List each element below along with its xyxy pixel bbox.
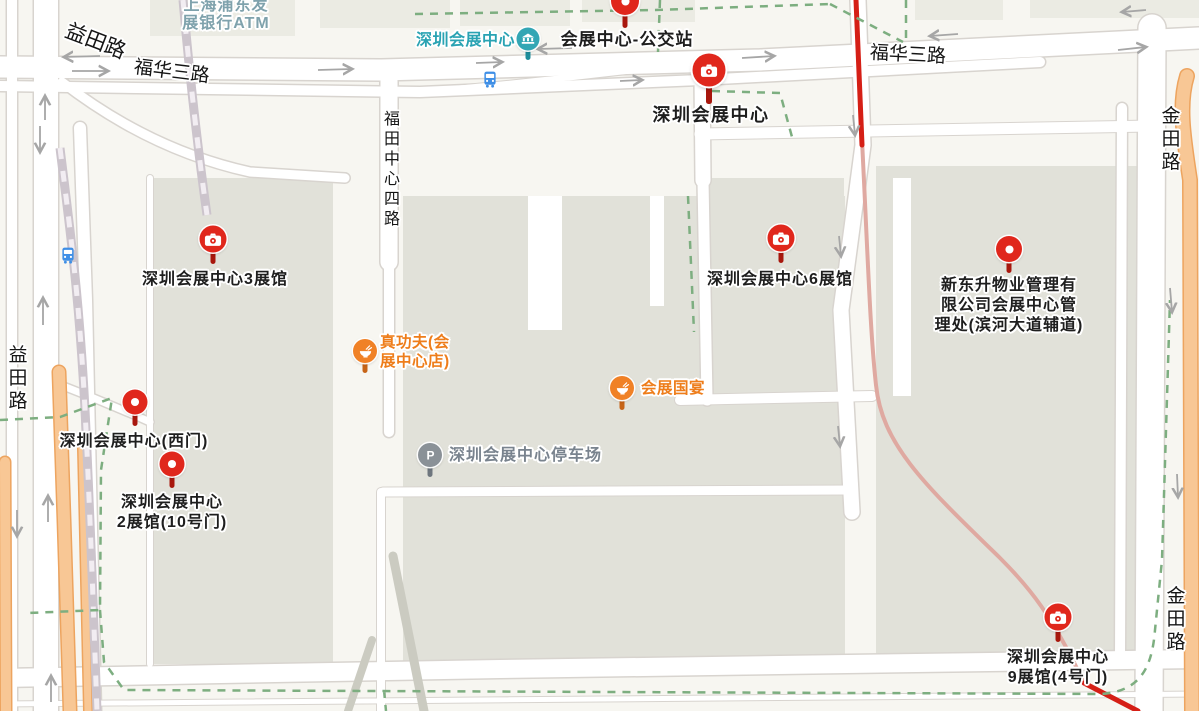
dot-pin[interactable] <box>123 390 148 415</box>
food-bowl-icon <box>615 381 630 396</box>
dot-icon <box>131 398 140 407</box>
poi-label-line: 深圳会展中心停车场 <box>449 446 602 466</box>
camera-icon <box>701 63 718 77</box>
poi-label-convention-banquet-restaurant[interactable]: 会展国宴 <box>641 379 705 398</box>
dot-pin[interactable] <box>611 0 639 15</box>
dot-pin[interactable] <box>996 236 1022 262</box>
poi-label-line: 深圳会展中心 <box>1007 648 1109 668</box>
poi-label-hall-9[interactable]: 深圳会展中心9展馆(4号门) <box>1007 648 1109 688</box>
bus-stop-icon <box>61 247 76 269</box>
poi-label-line: 2展馆(10号门) <box>117 513 227 533</box>
poi-label-line: 理处(滨河大道辅道) <box>935 316 1084 336</box>
dot-pin[interactable] <box>160 452 185 477</box>
food-pin[interactable] <box>610 376 634 400</box>
svg-text:P: P <box>426 448 434 462</box>
parking-pin[interactable]: P <box>418 443 442 467</box>
poi-label-bus-stop-pin[interactable]: 会展中心-公交站 <box>561 30 694 50</box>
poi-label-spd-bank-atm: 上海浦东发展银行ATM <box>182 0 269 33</box>
bus-stop-icon <box>483 71 498 93</box>
food-pin[interactable] <box>353 339 377 363</box>
poi-label-line: 会展国宴 <box>641 379 705 398</box>
bus-icon <box>483 71 498 88</box>
poi-label-line: 新东升物业管理有 <box>935 276 1084 296</box>
poi-label-hall-6[interactable]: 深圳会展中心6展馆 <box>707 270 853 290</box>
camera-pin[interactable] <box>768 225 795 252</box>
poi-label-line: 会展中心-公交站 <box>561 30 694 50</box>
poi-label-hall-3[interactable]: 深圳会展中心3展馆 <box>142 270 288 290</box>
poi-label-line: 限公司会展中心管 <box>935 296 1084 316</box>
poi-label-line: 深圳会展中心6展馆 <box>707 270 853 290</box>
poi-label-line: 展中心店) <box>380 352 450 371</box>
poi-label-west-gate[interactable]: 深圳会展中心(西门) <box>60 432 209 452</box>
metro-pin[interactable] <box>517 28 540 51</box>
camera-pin[interactable] <box>1045 604 1072 631</box>
camera-icon <box>1050 610 1067 624</box>
poi-label-line: 深圳会展中心3展馆 <box>142 270 288 290</box>
camera-icon <box>205 232 222 246</box>
food-bowl-icon <box>358 344 373 359</box>
metro-station-icon <box>521 34 536 45</box>
camera-icon <box>773 231 790 245</box>
poi-label-metro-station[interactable]: 深圳会展中心 <box>416 31 515 51</box>
map-canvas[interactable]: 益田路福华三路福华三路福田中心四路益田路金田路金田路 会展中心-公交站深圳会展中… <box>0 0 1199 711</box>
camera-pin-selected[interactable] <box>693 54 726 87</box>
poi-label-parking-lot[interactable]: 深圳会展中心停车场 <box>449 446 602 466</box>
parking-icon: P <box>423 448 438 463</box>
poi-label-line: 真功夫(会 <box>380 333 450 352</box>
poi-label-line: 深圳会展中心 <box>416 31 515 51</box>
poi-label-line: 展银行ATM <box>182 15 269 33</box>
poi-label-hall-2[interactable]: 深圳会展中心2展馆(10号门) <box>117 493 227 533</box>
camera-pin[interactable] <box>200 226 227 253</box>
poi-label-line: 深圳会展中心 <box>653 104 770 126</box>
poi-label-line: 上海浦东发 <box>182 0 269 15</box>
poi-label-line: 深圳会展中心 <box>117 493 227 513</box>
poi-label-shenzhen-convention-center[interactable]: 深圳会展中心 <box>653 104 770 126</box>
poi-label-zhen-gong-fu-restaurant[interactable]: 真功夫(会展中心店) <box>380 333 450 371</box>
poi-label-line: 深圳会展中心(西门) <box>60 432 209 452</box>
poi-label-property-office[interactable]: 新东升物业管理有限公司会展中心管理处(滨河大道辅道) <box>935 276 1084 336</box>
poi-markers-layer: 会展中心-公交站深圳会展中心深圳会展中心3展馆深圳会展中心6展馆深圳会展中心9展… <box>0 0 1199 711</box>
bus-icon <box>61 247 76 264</box>
dot-icon <box>1005 245 1014 254</box>
dot-icon <box>168 460 177 469</box>
poi-label-line: 9展馆(4号门) <box>1007 668 1109 688</box>
dot-icon <box>621 0 630 6</box>
